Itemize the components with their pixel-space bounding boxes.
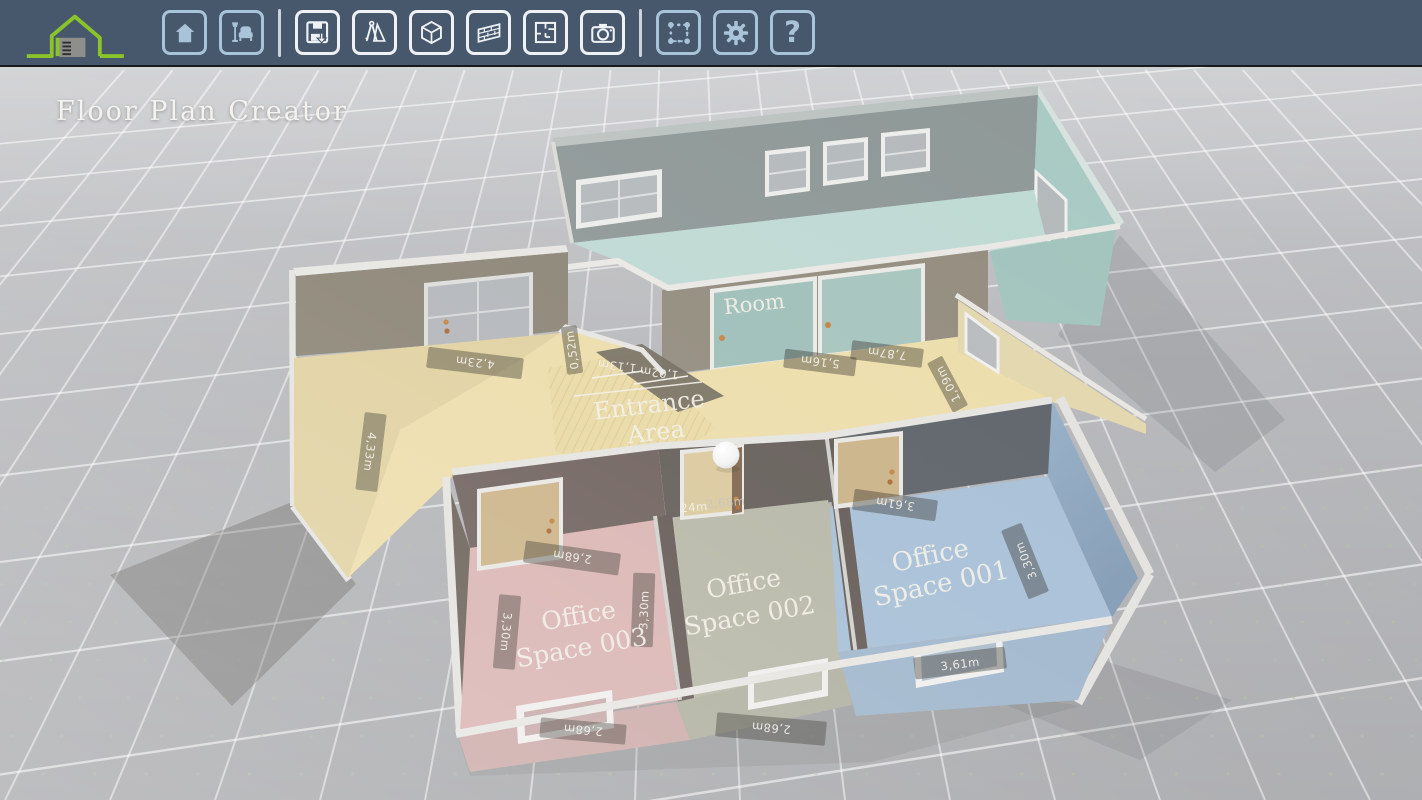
toolbar-divider: [278, 9, 281, 57]
cube-3d-icon: [418, 19, 445, 46]
wall-texture-button[interactable]: [466, 10, 511, 55]
home-icon: [172, 20, 198, 46]
furniture-button[interactable]: [219, 10, 264, 55]
compass-setsquare-icon: [361, 19, 388, 46]
help-button[interactable]: ?: [770, 10, 815, 55]
page-title: Floor Plan Creator: [56, 96, 348, 127]
camera-icon: [589, 19, 617, 47]
view-3d-button[interactable]: [409, 10, 454, 55]
select-button[interactable]: [656, 10, 701, 55]
snapshot-button[interactable]: [580, 10, 625, 55]
marquee-select-icon: [665, 19, 693, 47]
toolbar-group-nav: [162, 10, 264, 55]
toolbar-group-settings: ?: [656, 10, 815, 55]
save-button[interactable]: [295, 10, 340, 55]
app-logo: [12, 8, 130, 58]
measure-tools-button[interactable]: [352, 10, 397, 55]
floor-plan-button[interactable]: [523, 10, 568, 55]
wall-texture-icon: [475, 19, 503, 47]
toolbar-divider: [639, 9, 642, 57]
app-window: Room 4,23m: [0, 0, 1422, 800]
floor-plan-icon: [532, 19, 559, 46]
gear-icon: [722, 19, 750, 47]
toolbar-group-tools: [295, 10, 625, 55]
home-button[interactable]: [162, 10, 207, 55]
save-export-icon: [304, 19, 331, 46]
toolbar: ?: [0, 0, 1422, 67]
settings-button[interactable]: [713, 10, 758, 55]
armchair-lamp-icon: [228, 19, 255, 46]
question-icon: ?: [784, 18, 801, 47]
